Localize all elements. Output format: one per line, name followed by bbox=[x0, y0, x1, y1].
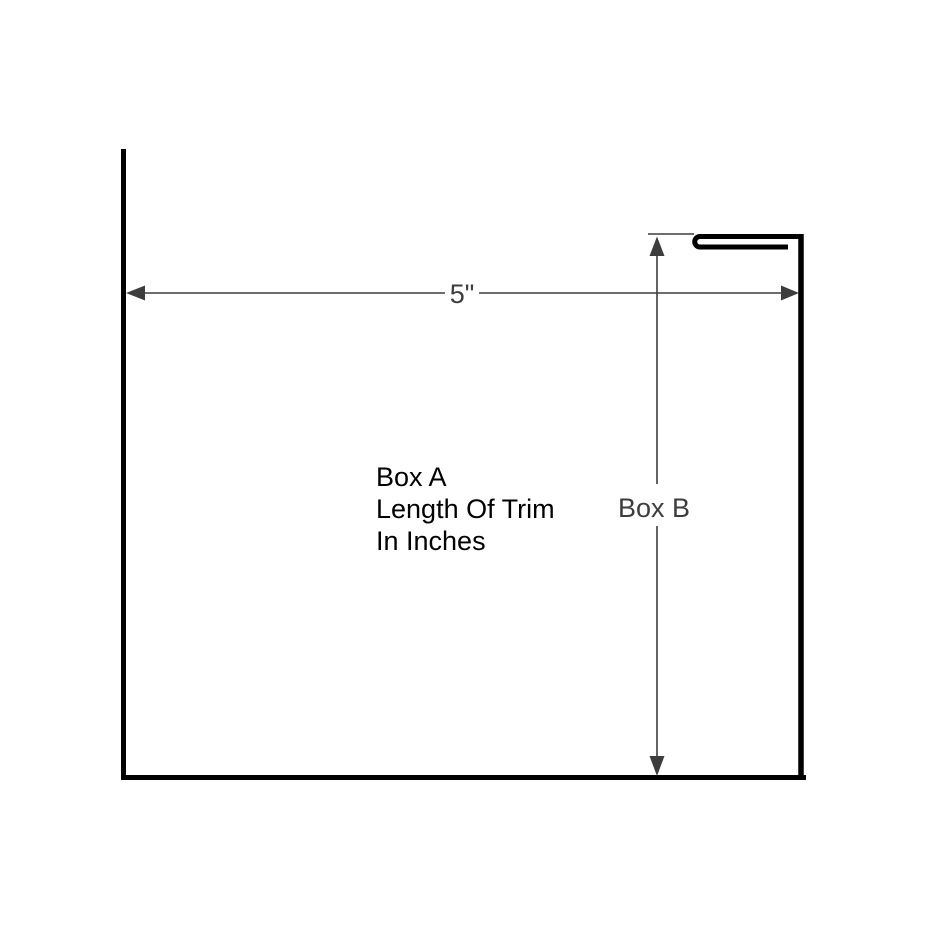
annotation-line-3: In Inches bbox=[376, 526, 486, 556]
diagram-canvas: 5" Box B Box A Length Of Trim In Inches bbox=[0, 0, 929, 930]
width-dimension-left-arrowhead bbox=[126, 286, 145, 301]
width-dimension: 5" bbox=[126, 279, 799, 309]
profile-hem-fold bbox=[695, 237, 803, 248]
width-dimension-label: 5" bbox=[450, 279, 475, 309]
height-dimension-bottom-arrowhead bbox=[650, 756, 665, 776]
annotation-line-1: Box A bbox=[376, 462, 447, 492]
height-dimension: Box B bbox=[618, 234, 694, 776]
annotation-line-2: Length Of Trim bbox=[376, 494, 555, 524]
width-dimension-right-arrowhead bbox=[781, 286, 799, 301]
height-dimension-top-arrowhead bbox=[650, 237, 665, 257]
box-a-annotation: Box A Length Of Trim In Inches bbox=[376, 462, 555, 556]
height-dimension-label: Box B bbox=[618, 493, 690, 523]
trim-profile-outline bbox=[121, 149, 806, 780]
